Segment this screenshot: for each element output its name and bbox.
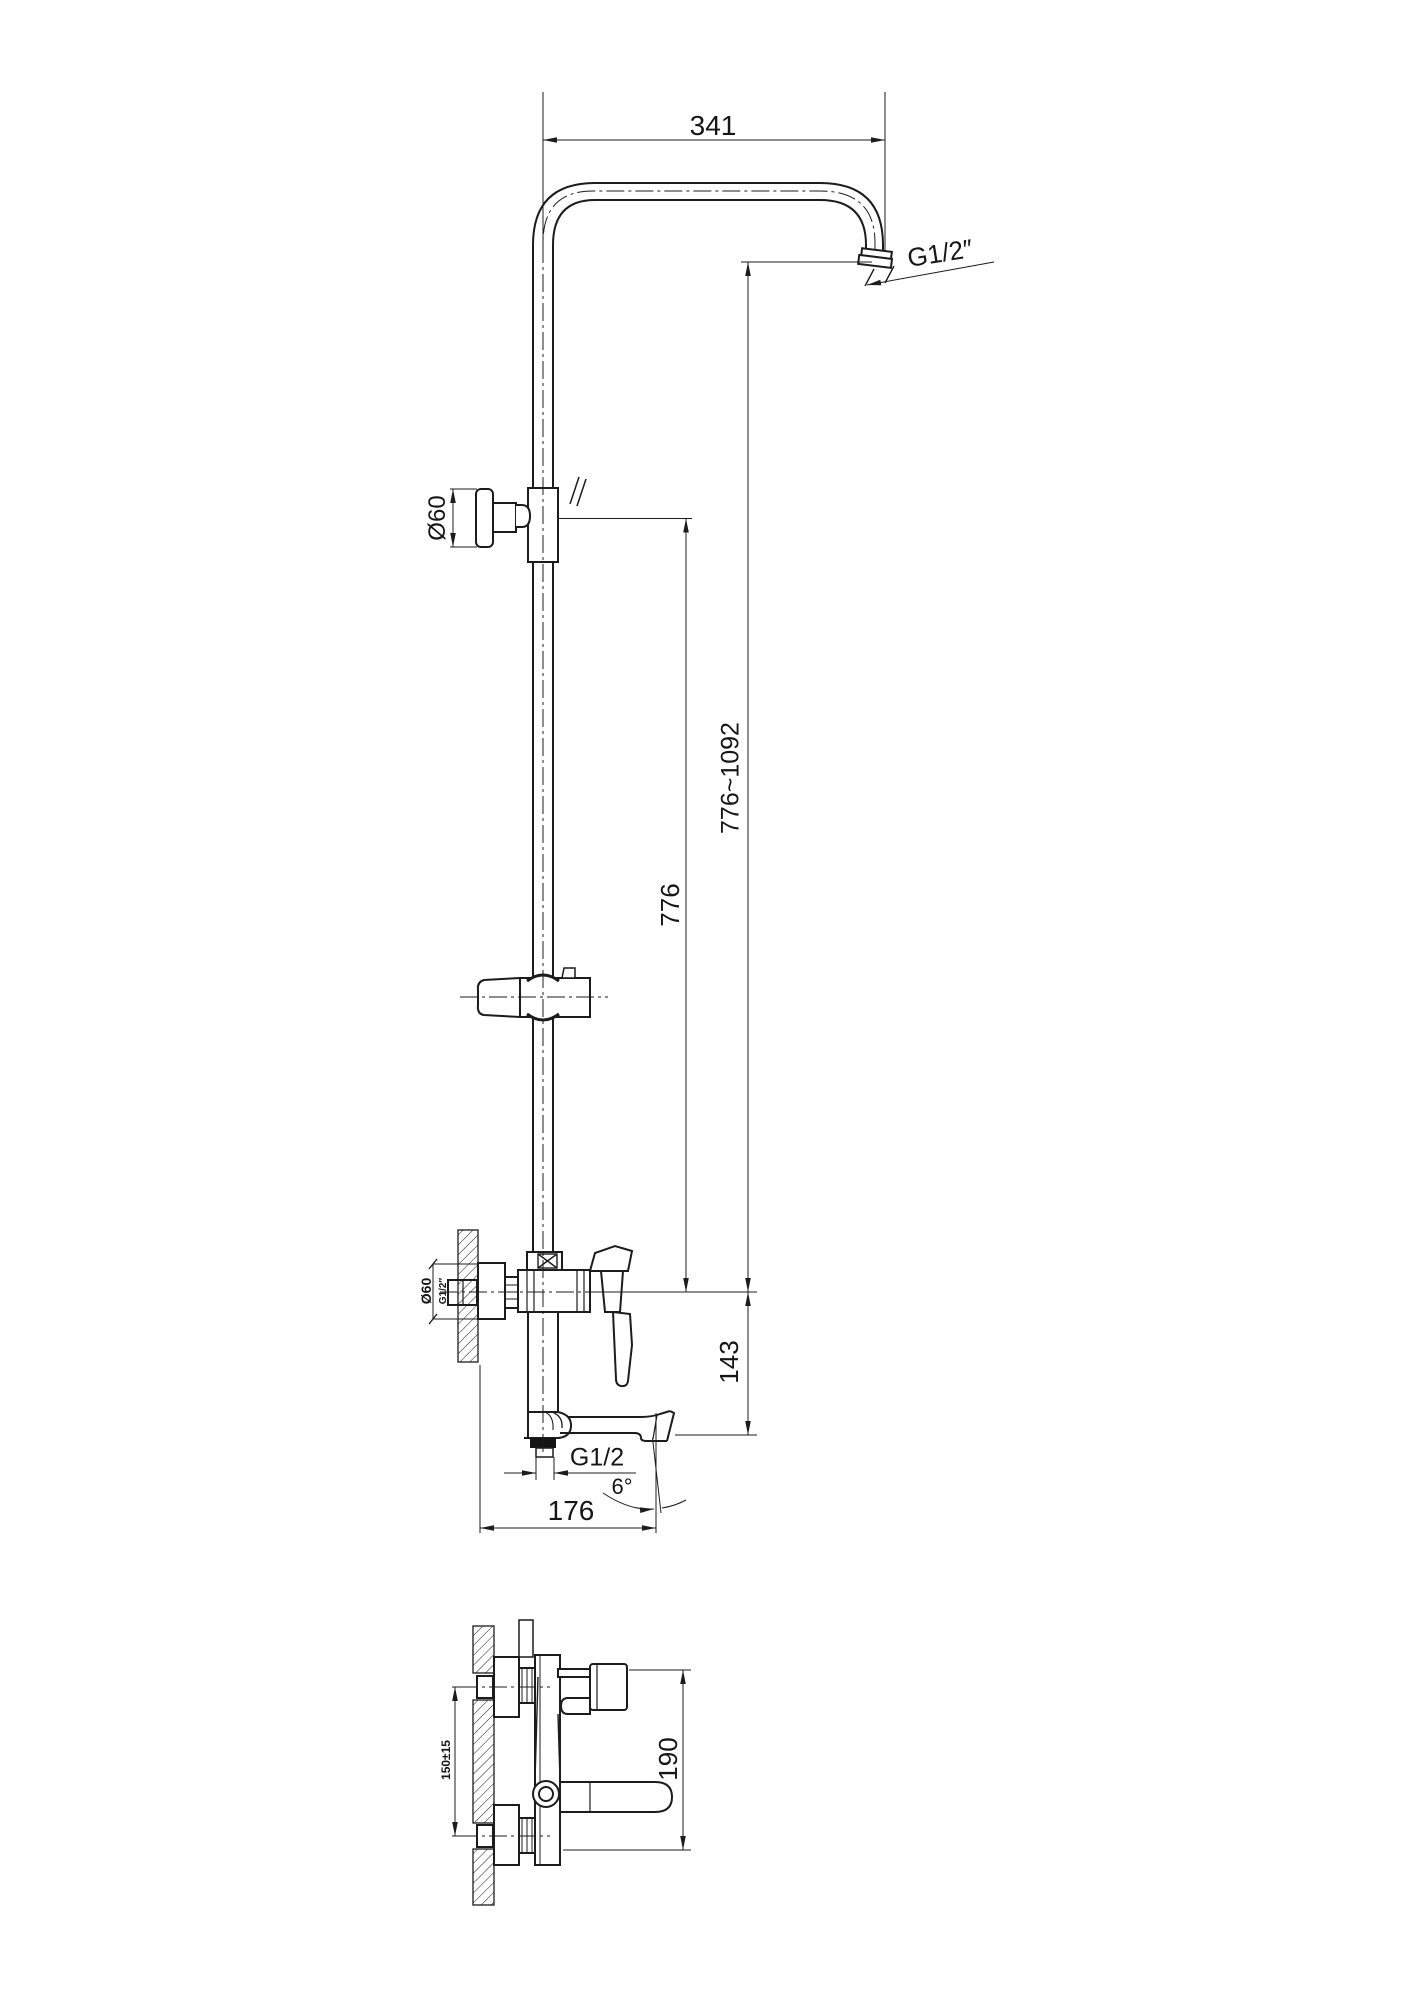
spout-angle-label: 6° — [611, 1476, 632, 1498]
inlet-spacing-label: 150±15 — [440, 1740, 452, 1780]
spout-outlet-thread-label: G1/2 — [570, 1446, 624, 1471]
wall-section-main — [458, 1230, 478, 1362]
dim-plan-depth-label: 190 — [655, 1737, 681, 1780]
dimension-lines-main — [429, 92, 994, 1533]
valve-escutcheon-diameter-label: Ø60 — [419, 1278, 433, 1304]
tub-spout — [560, 1411, 674, 1441]
drawing-sheet: 341 G1/2″ Ø60 776~1092 776 Ø60 G1/2″ 143… — [0, 0, 1413, 2000]
slider-knob-assembly — [476, 488, 558, 562]
wall-section-plan — [473, 1626, 494, 1905]
dim-spout-drop-label: 143 — [716, 1340, 742, 1383]
mixer-valve-body — [518, 1252, 590, 1312]
slider-knob-diameter-label: Ø60 — [426, 495, 450, 540]
mixer-handle — [590, 1246, 632, 1386]
spout-plan — [560, 1782, 672, 1812]
dim-arm-width-label: 341 — [690, 112, 737, 140]
dim-height-range-label: 776~1092 — [719, 722, 744, 834]
handshower-holder — [478, 968, 590, 1020]
mixer-lower-body — [524, 1312, 571, 1438]
arm-thread-connector — [858, 248, 893, 268]
pipe-break-symbol — [570, 477, 586, 506]
dim-wall-to-spout-label: 176 — [548, 1497, 595, 1525]
shower-riser-and-arm — [533, 183, 883, 1252]
valve-inlet-thread-label: G1/2″ — [439, 1278, 449, 1304]
technical-drawing — [0, 0, 1413, 2000]
spout-pivot — [533, 1781, 559, 1807]
dim-height-fixed-label: 776 — [657, 883, 683, 926]
